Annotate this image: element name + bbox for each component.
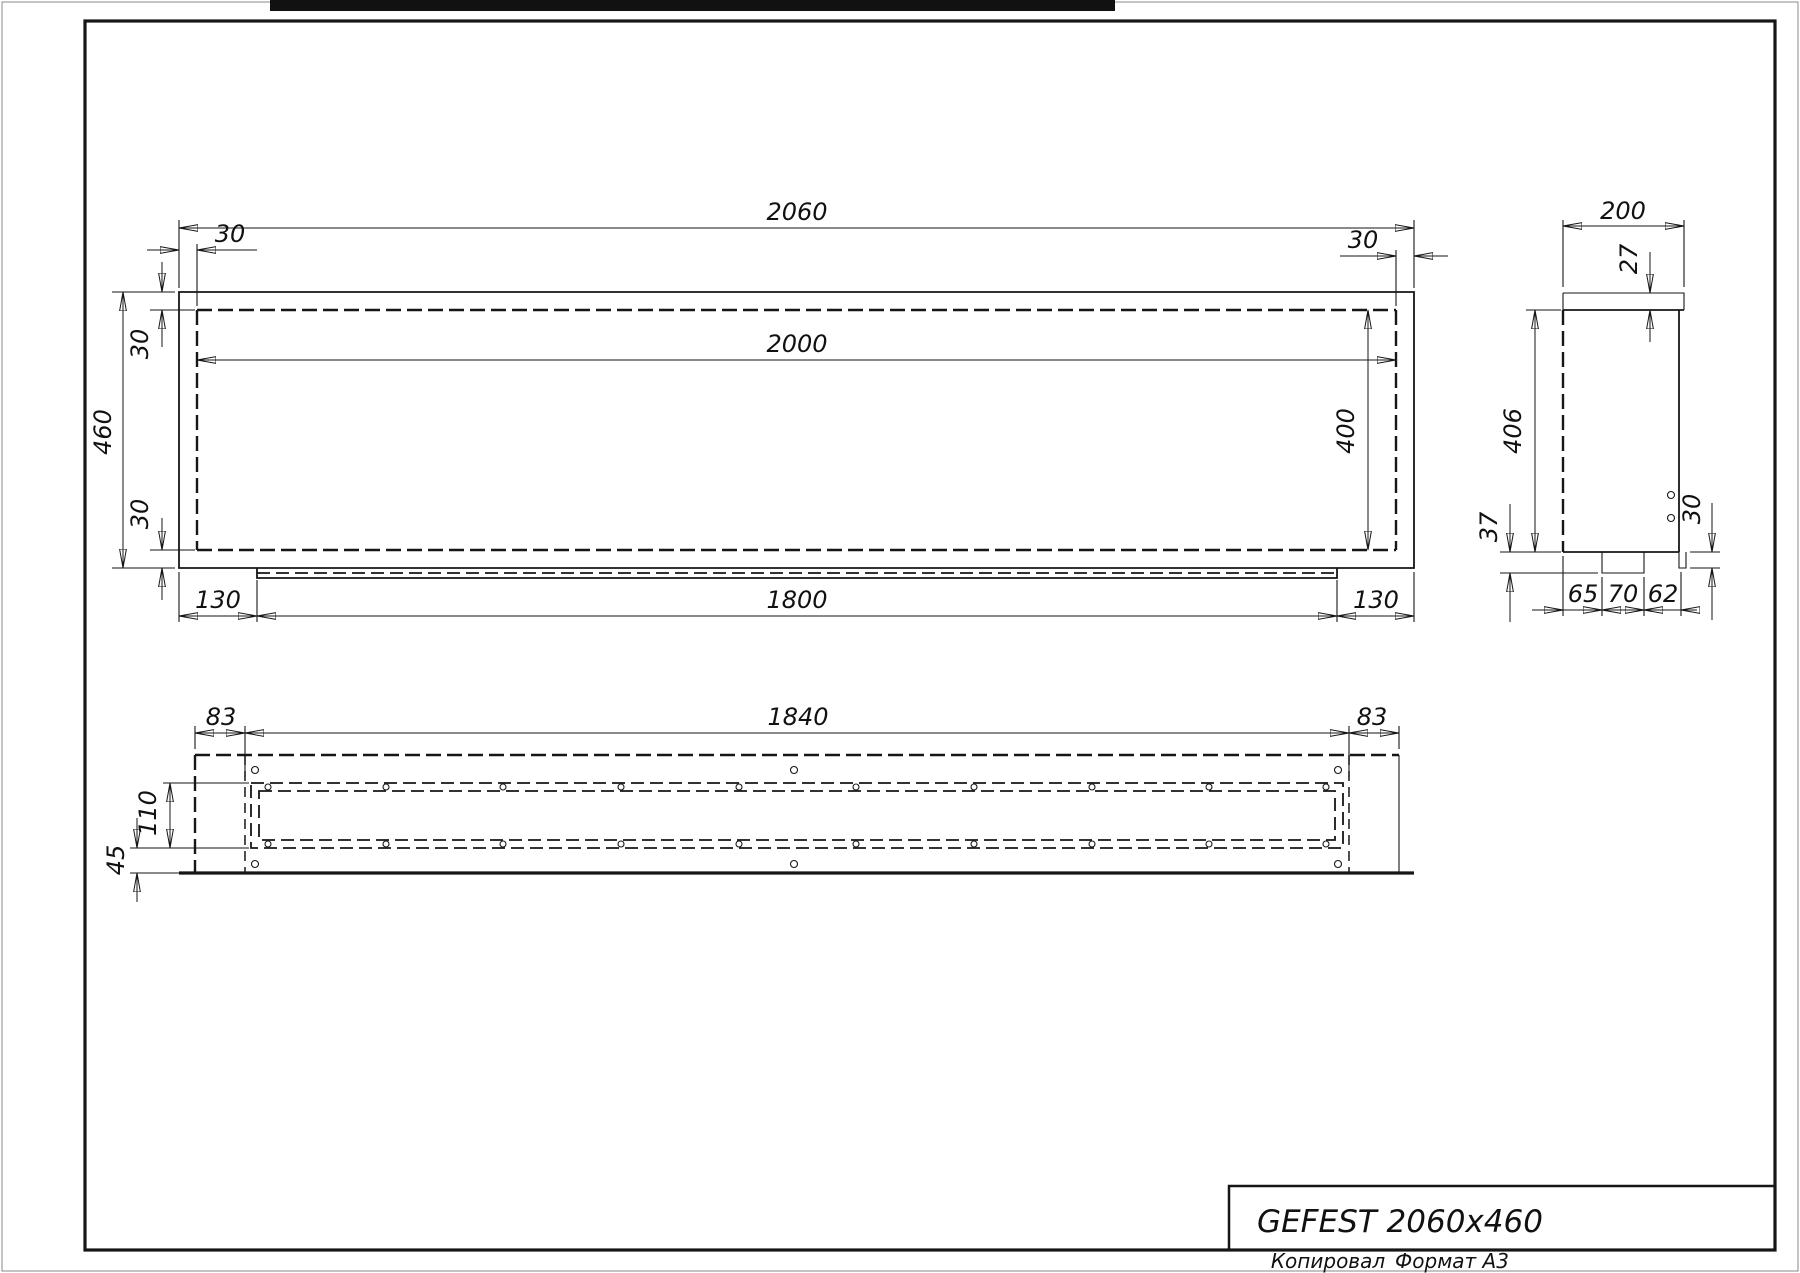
flange-holes bbox=[252, 767, 1342, 868]
dim-seg-a: 65 bbox=[1568, 580, 1599, 608]
front-extension-lines bbox=[112, 220, 1414, 622]
copied-label: Копировал bbox=[1271, 1249, 1385, 1273]
bottom-view: 83 1840 83 110 45 bbox=[102, 703, 1414, 902]
dim-wall-top: 30 bbox=[126, 329, 154, 360]
title-block: GEFEST 2060x460 Копировал Формат А3 bbox=[1229, 1186, 1775, 1273]
dim-total-height: 460 bbox=[89, 409, 117, 455]
side-extension-lines bbox=[1500, 220, 1720, 616]
dim-slot-width: 110 bbox=[134, 790, 162, 836]
dim-inner-height: 400 bbox=[1332, 408, 1360, 454]
slot-holes-bottom-row bbox=[265, 841, 1329, 847]
dim-step-height: 30 bbox=[1678, 494, 1706, 525]
dim-top-offset-left: 30 bbox=[215, 220, 246, 248]
paper-edge bbox=[2, 2, 1798, 1271]
dim-body-height: 406 bbox=[1499, 408, 1527, 454]
drawing-border bbox=[85, 21, 1775, 1250]
dim-seg-b: 70 bbox=[1608, 580, 1639, 608]
bottom-extension-lines bbox=[130, 726, 1399, 873]
dim-seg-c: 62 bbox=[1648, 580, 1679, 608]
dim-base-width: 1800 bbox=[766, 586, 827, 614]
technical-drawing: 2060 30 30 2000 460 30 30 400 130 1800 1… bbox=[0, 0, 1800, 1273]
dim-top-offset-right: 30 bbox=[1348, 226, 1379, 254]
dim-foot-drop: 37 bbox=[1475, 511, 1503, 542]
side-hole-upper bbox=[1668, 492, 1675, 499]
dim-wall-bottom: 30 bbox=[126, 499, 154, 530]
dim-rim-thickness: 27 bbox=[1615, 243, 1643, 274]
side-bottom-tab bbox=[1602, 552, 1644, 573]
side-hole-lower bbox=[1668, 515, 1675, 522]
slot-holes-top-row bbox=[265, 784, 1329, 790]
scan-artifact-band bbox=[270, 0, 1115, 11]
side-view: 200 27 406 37 30 65 70 62 bbox=[1475, 197, 1720, 622]
model-name: GEFEST 2060x460 bbox=[1257, 1204, 1543, 1240]
dim-inner-width: 2000 bbox=[766, 330, 827, 358]
side-dimension-lines bbox=[1510, 226, 1712, 622]
dim-edge-left: 83 bbox=[206, 703, 237, 731]
dim-base-offset-left: 130 bbox=[195, 586, 241, 614]
dim-total-width: 2060 bbox=[766, 198, 827, 226]
front-dimension-lines bbox=[123, 228, 1448, 616]
side-bottom-step bbox=[1679, 552, 1686, 568]
sheet-frame bbox=[2, 0, 1798, 1271]
burner-slot-inner bbox=[259, 791, 1335, 840]
dim-edge-right: 83 bbox=[1357, 703, 1388, 731]
dim-depth: 200 bbox=[1600, 197, 1646, 225]
dim-base-offset-right: 130 bbox=[1353, 586, 1399, 614]
side-rim-outline bbox=[1563, 293, 1684, 310]
dim-opening-length: 1840 bbox=[767, 703, 828, 731]
format-label: Формат А3 bbox=[1395, 1249, 1509, 1273]
drawing-sheet: 2060 30 30 2000 460 30 30 400 130 1800 1… bbox=[0, 0, 1800, 1273]
dim-flange-offset: 45 bbox=[102, 845, 130, 876]
bottom-dimension-lines bbox=[137, 733, 1399, 902]
burner-slot-outer bbox=[251, 783, 1343, 848]
front-view: 2060 30 30 2000 460 30 30 400 130 1800 1… bbox=[89, 198, 1448, 622]
